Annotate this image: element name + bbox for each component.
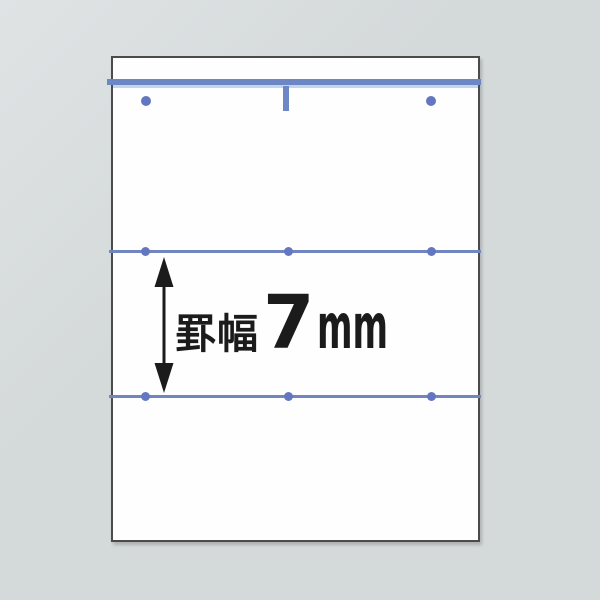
rule-dot bbox=[284, 247, 293, 256]
ruled-line bbox=[109, 395, 481, 398]
rule-dot bbox=[141, 392, 150, 401]
ruled-line bbox=[109, 250, 481, 253]
rule-dot bbox=[427, 392, 436, 401]
rule-dot bbox=[141, 247, 150, 256]
header-rule-highlight bbox=[113, 85, 478, 88]
margin-dot bbox=[426, 96, 436, 106]
double-arrow-icon bbox=[151, 257, 177, 393]
rule-width-label: 罫幅 7 mm bbox=[175, 286, 446, 360]
notebook-paper: 罫幅 7 mm bbox=[111, 56, 480, 542]
rule-dot bbox=[284, 392, 293, 401]
rule-width-value: 7 bbox=[263, 286, 315, 360]
rule-width-prefix: 罫幅 bbox=[175, 314, 259, 355]
rule-dot bbox=[427, 247, 436, 256]
rule-width-unit: mm bbox=[317, 296, 388, 358]
margin-dot bbox=[141, 96, 151, 106]
product-detail-image: 罫幅 7 mm bbox=[0, 0, 600, 600]
center-tick-mark bbox=[283, 86, 289, 111]
